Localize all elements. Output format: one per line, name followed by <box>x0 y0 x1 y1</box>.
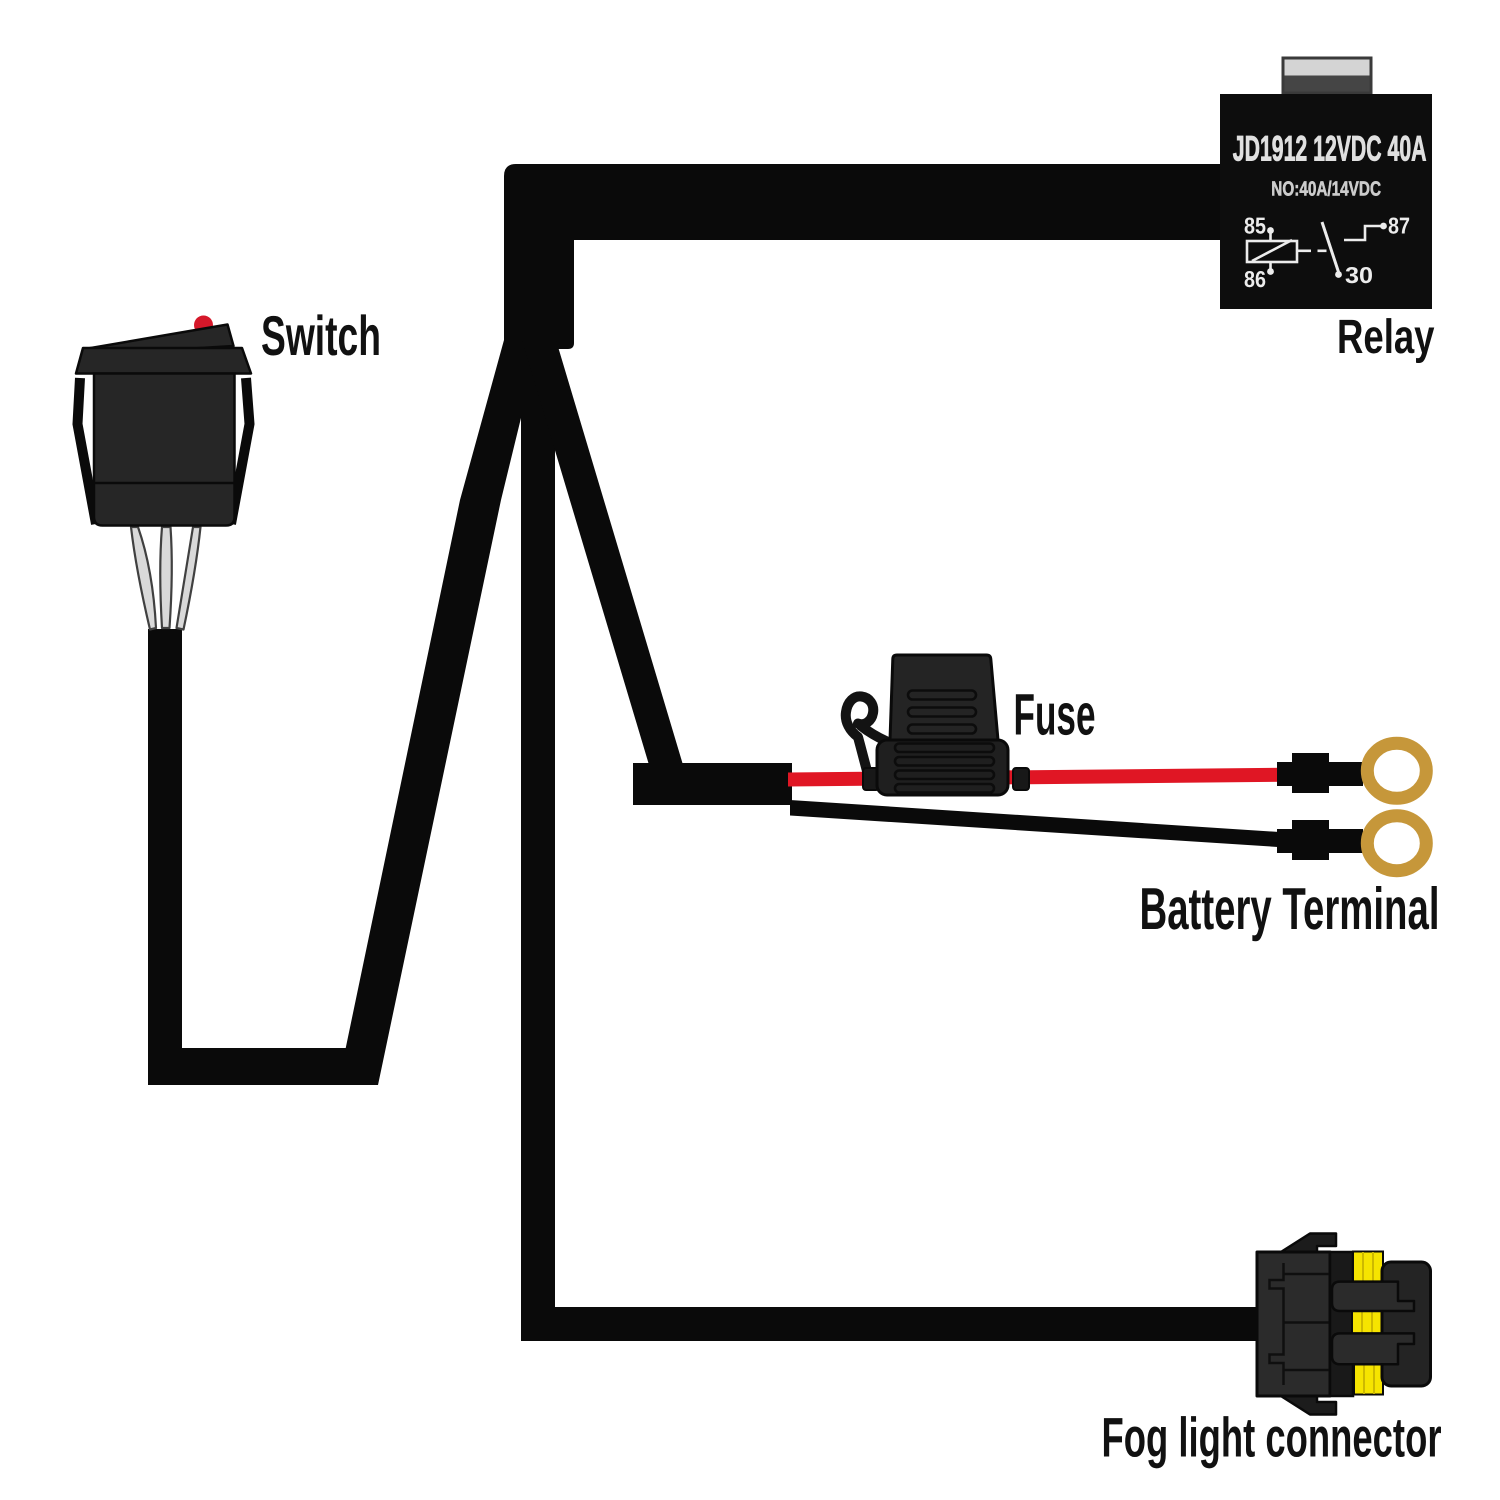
svg-text:Fog light connector: Fog light connector <box>1102 1406 1442 1469</box>
svg-text:Fuse: Fuse <box>1014 683 1096 748</box>
svg-text:30: 30 <box>1345 262 1373 288</box>
svg-text:87: 87 <box>1388 213 1410 239</box>
svg-text:86: 86 <box>1244 266 1266 292</box>
svg-text:NO:40A/14VDC: NO:40A/14VDC <box>1271 179 1381 201</box>
svg-text:Relay: Relay <box>1337 310 1435 364</box>
svg-text:85: 85 <box>1244 213 1266 239</box>
svg-text:Switch: Switch <box>261 304 381 367</box>
svg-text:JD1912 12VDC 40A: JD1912 12VDC 40A <box>1233 129 1427 169</box>
svg-text:Battery Terminal: Battery Terminal <box>1140 875 1440 942</box>
